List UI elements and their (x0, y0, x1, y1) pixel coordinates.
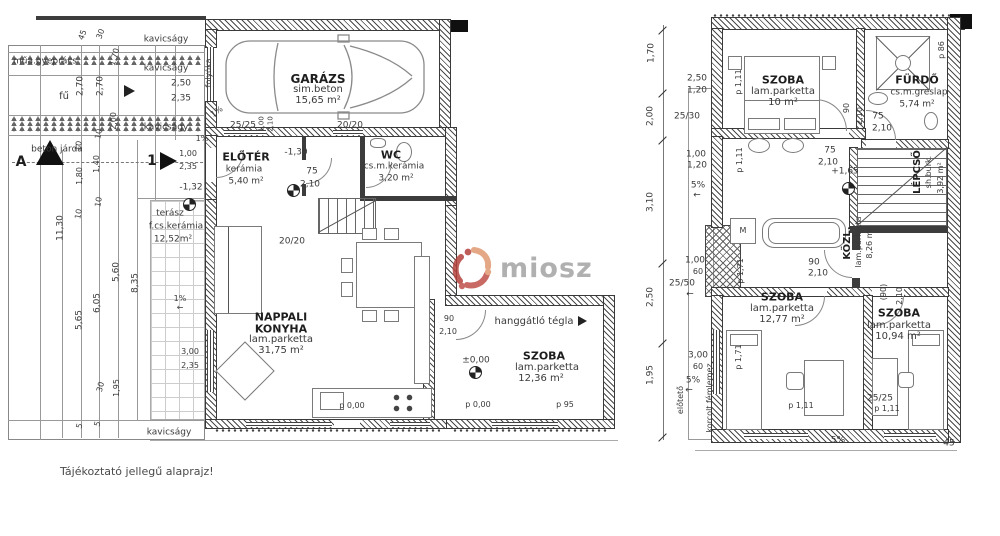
plan-label: 10 m² (768, 98, 798, 108)
plan-label: p 1,71 (735, 344, 743, 369)
plan-label: 2,10 (872, 125, 892, 134)
plan-label: cs.m.greslap (890, 89, 947, 98)
plan-label: 2,00 (647, 106, 656, 126)
plan-label: 45 (943, 440, 954, 449)
room-kozl: KÖZL. (843, 226, 853, 259)
plan-label: 1,20 (687, 162, 707, 171)
plan-label: 1,00 (686, 151, 706, 160)
plan-label: 2,10 (808, 270, 828, 279)
plan-label: 1,70 (648, 43, 657, 63)
plan-label: 25/30 (674, 113, 700, 122)
plan-label: 60 (693, 268, 703, 276)
plan-label: p 1,11 (736, 147, 744, 172)
plan-label: 1,95 (647, 365, 656, 385)
right-plan-labels: 1,702,501,2025/302,001,001,205%←3,101,00… (0, 0, 1000, 536)
plan-label: lam.parketta (751, 87, 815, 97)
plan-label: 2,50 (687, 75, 707, 84)
plan-label: korcolt fémlemez (706, 363, 714, 432)
plan-label: lam.parketta (855, 216, 863, 267)
plan-label: ← (685, 387, 693, 396)
plan-label: előtető (677, 386, 685, 414)
plan-label: p 86 (938, 41, 946, 59)
plan-label: +1,65 (831, 168, 859, 177)
plan-label: p 1,11 (788, 402, 813, 410)
plan-label: 25/50 (669, 280, 695, 289)
plan-label: 2,50 (647, 287, 656, 307)
plan-label: 60 (693, 363, 703, 371)
plan-label: lam.parketta (867, 321, 931, 331)
plan-label: 5% (686, 377, 700, 386)
plan-label: 3,00 (688, 352, 708, 361)
plan-label: 75 (872, 113, 883, 122)
plan-label: 90 (808, 259, 819, 268)
plan-label: 3,92 m² (937, 162, 945, 193)
floor-plan-canvas: miosz Tájékoztató jellegű alaprajz! kavi… (0, 0, 1000, 536)
plan-label: 2,10 (896, 287, 904, 305)
room-furdo: FÜRDŐ (895, 75, 938, 86)
plan-label: 5% (691, 182, 705, 191)
plan-label: 10,94 m² (875, 332, 921, 342)
plan-label: 2,10 (856, 107, 864, 125)
plan-label: 1,00 (685, 257, 705, 266)
plan-label: 8,26 m² (866, 227, 874, 258)
plan-label: 5% (831, 437, 845, 446)
plan-label: ← (693, 192, 701, 201)
plan-label: M (740, 227, 747, 235)
plan-label: 5,74 m² (899, 101, 934, 110)
room-szoba-10: SZOBA (762, 75, 804, 86)
plan-label: p 1,11 (874, 405, 899, 413)
plan-label: sh.burk. (925, 156, 933, 188)
plan-label: 12,77 m² (759, 315, 805, 325)
plan-label: (90) (880, 284, 888, 300)
room-szoba-1094: SZOBA (878, 308, 920, 319)
plan-label: lam.parketta (750, 304, 814, 314)
plan-label: 75 (824, 147, 835, 156)
plan-label: p 1,11 (735, 69, 743, 94)
plan-label: p 1,71 (737, 258, 745, 283)
plan-label: ← (686, 291, 694, 300)
plan-label: 3,10 (647, 192, 656, 212)
plan-label: 25/25 (867, 395, 893, 404)
plan-label: 90 (843, 103, 851, 113)
plan-label: 1,20 (687, 87, 707, 96)
room-szoba-1277: SZOBA (761, 292, 803, 303)
room-lepcso: LÉPCSŐ (913, 150, 923, 194)
